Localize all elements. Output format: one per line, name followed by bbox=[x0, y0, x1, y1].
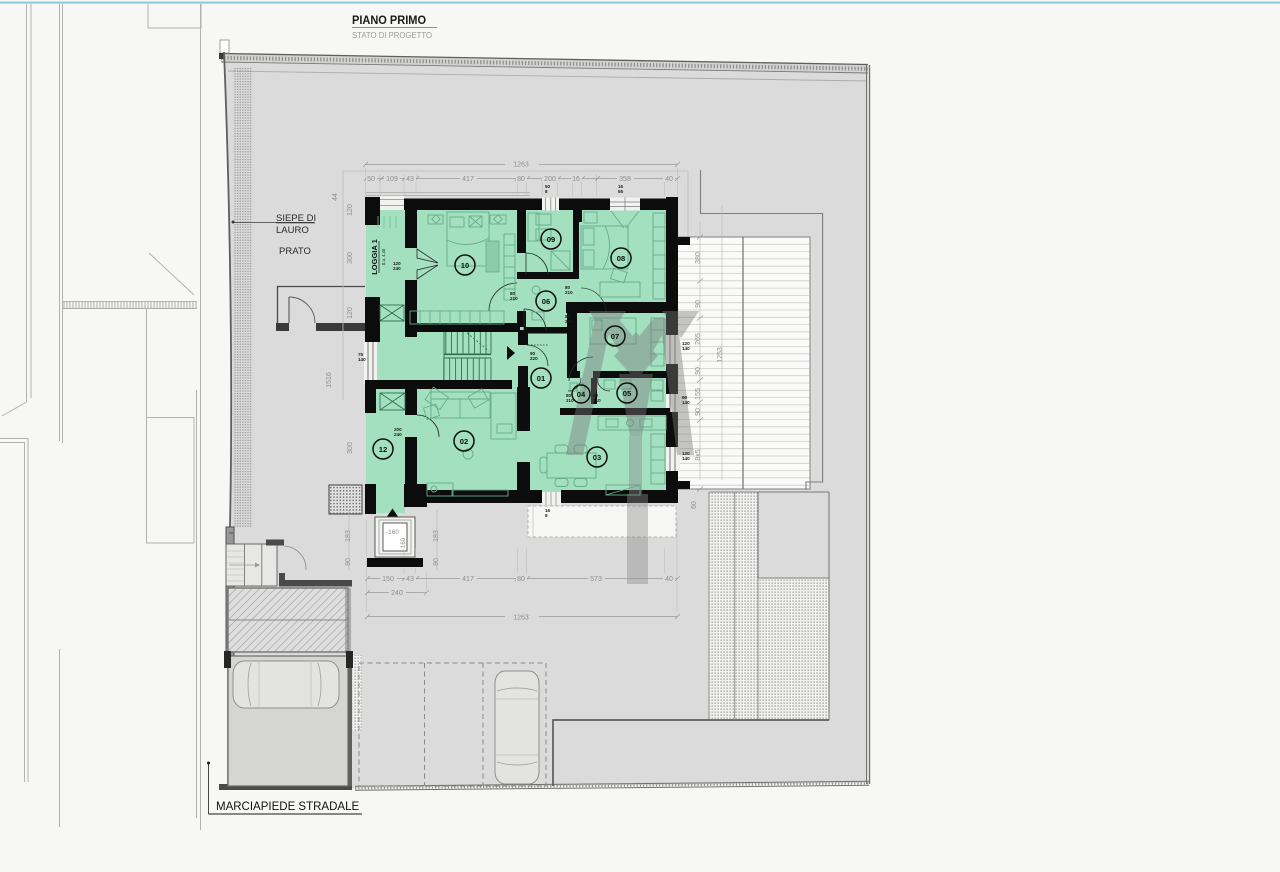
svg-text:300: 300 bbox=[347, 252, 354, 264]
svg-text:43: 43 bbox=[406, 176, 414, 183]
svg-text:109: 109 bbox=[386, 176, 398, 183]
svg-text:417: 417 bbox=[462, 576, 474, 583]
svg-text:43: 43 bbox=[406, 576, 414, 583]
svg-text:210: 210 bbox=[566, 398, 574, 403]
svg-text:183: 183 bbox=[345, 530, 352, 542]
svg-text:1253: 1253 bbox=[717, 347, 724, 363]
svg-text:80: 80 bbox=[345, 558, 352, 566]
svg-text:160: 160 bbox=[401, 537, 407, 548]
svg-text:07: 07 bbox=[611, 332, 619, 341]
svg-text:S.u. 4,40: S.u. 4,40 bbox=[381, 248, 386, 265]
svg-text:-160: -160 bbox=[386, 529, 399, 536]
svg-text:09: 09 bbox=[547, 235, 555, 244]
svg-text:183: 183 bbox=[433, 530, 440, 542]
svg-text:1516: 1516 bbox=[326, 372, 333, 388]
svg-text:417: 417 bbox=[462, 176, 474, 183]
svg-text:210: 210 bbox=[593, 398, 601, 403]
svg-text:220: 220 bbox=[530, 356, 538, 361]
svg-text:90: 90 bbox=[695, 408, 702, 416]
svg-text:120: 120 bbox=[347, 204, 354, 216]
svg-text:80: 80 bbox=[517, 176, 525, 183]
svg-text:80: 80 bbox=[517, 576, 525, 583]
svg-text:PIANO PRIMO: PIANO PRIMO bbox=[352, 13, 426, 27]
svg-text:01: 01 bbox=[537, 374, 546, 383]
svg-text:LAURO: LAURO bbox=[276, 225, 309, 236]
svg-text:90: 90 bbox=[695, 367, 702, 375]
svg-text:SIEPE DI: SIEPE DI bbox=[276, 213, 316, 224]
svg-text:155: 155 bbox=[695, 388, 702, 400]
svg-text:55: 55 bbox=[618, 189, 624, 194]
svg-text:210: 210 bbox=[510, 296, 518, 301]
svg-text:04: 04 bbox=[577, 390, 586, 399]
svg-text:40: 40 bbox=[665, 576, 673, 583]
svg-text:44: 44 bbox=[332, 193, 339, 201]
svg-text:140: 140 bbox=[682, 400, 690, 405]
svg-text:210: 210 bbox=[565, 319, 573, 324]
svg-text:240: 240 bbox=[394, 432, 402, 437]
svg-text:200: 200 bbox=[544, 176, 556, 183]
svg-text:80: 80 bbox=[433, 558, 440, 566]
svg-text:LOGGIA 1: LOGGIA 1 bbox=[370, 239, 379, 275]
svg-text:240: 240 bbox=[393, 266, 401, 271]
svg-text:90: 90 bbox=[695, 300, 702, 308]
svg-text:03: 03 bbox=[593, 453, 601, 462]
svg-text:02: 02 bbox=[460, 437, 468, 446]
svg-text:8: 8 bbox=[545, 513, 548, 518]
svg-text:140: 140 bbox=[682, 346, 690, 351]
svg-text:16: 16 bbox=[572, 176, 580, 183]
svg-text:05: 05 bbox=[623, 389, 632, 398]
svg-text:1263: 1263 bbox=[513, 162, 529, 169]
svg-text:10: 10 bbox=[461, 261, 469, 270]
svg-text:300: 300 bbox=[347, 442, 354, 454]
svg-text:140: 140 bbox=[358, 357, 366, 362]
svg-text:150: 150 bbox=[382, 576, 394, 583]
svg-text:60: 60 bbox=[691, 501, 698, 509]
svg-text:120: 120 bbox=[347, 307, 354, 319]
svg-text:210: 210 bbox=[565, 290, 573, 295]
svg-text:380: 380 bbox=[695, 252, 702, 264]
svg-text:8: 8 bbox=[545, 189, 548, 194]
svg-text:1263: 1263 bbox=[513, 615, 529, 622]
svg-text:12: 12 bbox=[379, 445, 387, 454]
svg-text:06: 06 bbox=[542, 297, 550, 306]
svg-text:358: 358 bbox=[619, 176, 631, 183]
svg-text:50: 50 bbox=[367, 176, 375, 183]
svg-text:STATO DI PROGETTO: STATO DI PROGETTO bbox=[352, 31, 432, 40]
svg-text:240: 240 bbox=[391, 590, 403, 597]
svg-text:265: 265 bbox=[695, 333, 702, 345]
svg-text:MARCIAPIEDE STRADALE: MARCIAPIEDE STRADALE bbox=[216, 801, 359, 813]
svg-text:40: 40 bbox=[665, 176, 673, 183]
svg-text:573: 573 bbox=[590, 576, 602, 583]
svg-text:140: 140 bbox=[682, 456, 690, 461]
svg-text:PRATO: PRATO bbox=[279, 246, 311, 257]
svg-text:08: 08 bbox=[617, 254, 625, 263]
svg-text:8x5: 8x5 bbox=[695, 449, 702, 460]
